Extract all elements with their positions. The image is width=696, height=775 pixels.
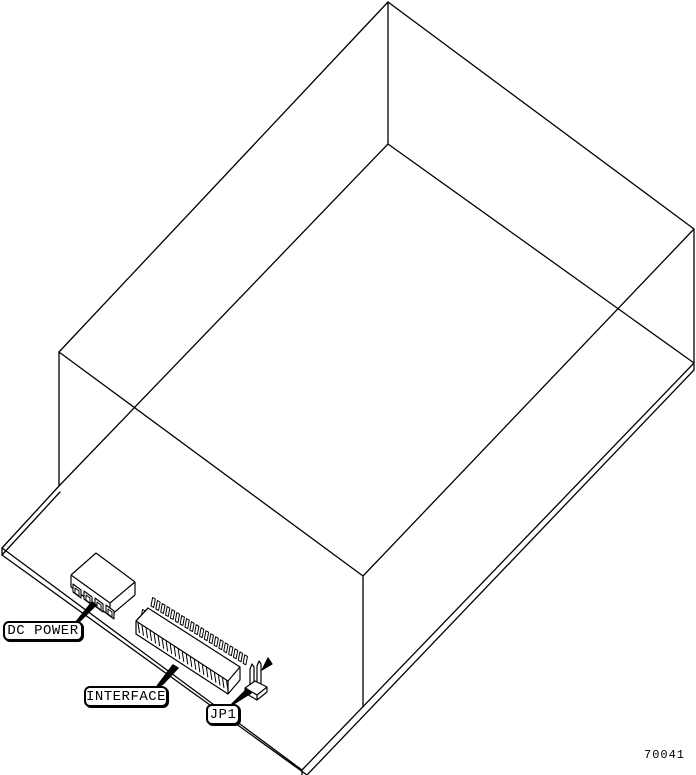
dc-power-connector — [71, 553, 135, 619]
jp1-callout: JP1 — [206, 704, 240, 725]
isometric-line-art — [0, 0, 696, 775]
jp1-pin — [257, 661, 261, 684]
interface-callout: INTERFACE — [84, 686, 168, 707]
dc-power-callout: DC POWER — [3, 621, 83, 641]
technical-drawing-canvas: DC POWER INTERFACE JP1 70041 — [0, 0, 696, 775]
enclosure-bottom-hidden-edges — [59, 144, 694, 486]
circuit-board-outline — [2, 363, 694, 775]
interface-connector — [136, 598, 247, 695]
enclosure-top-face — [59, 2, 694, 576]
board-front-left-edge — [2, 548, 307, 775]
board-left-end — [2, 486, 60, 555]
figure-part-number: 70041 — [644, 748, 685, 762]
board-front-right-edge — [302, 363, 694, 775]
jp1-arrow-mark — [262, 658, 272, 670]
